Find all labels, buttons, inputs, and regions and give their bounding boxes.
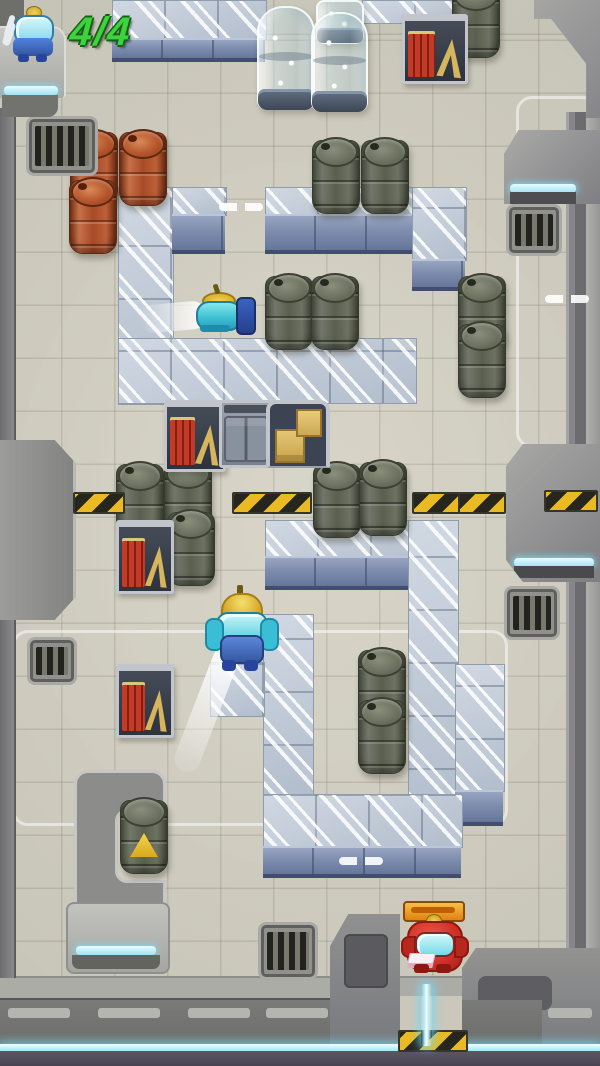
passage-marker xyxy=(545,295,589,303)
metal-column xyxy=(408,520,459,822)
metal-block xyxy=(172,187,227,216)
skid-part xyxy=(200,325,230,332)
road-dash xyxy=(8,1008,70,1018)
dark-barrel xyxy=(312,140,360,214)
legr-part xyxy=(244,660,258,671)
dark-barrel xyxy=(458,324,506,398)
vent-grate xyxy=(27,637,77,685)
gate-panel xyxy=(344,934,388,988)
metal-block-front xyxy=(172,214,225,254)
dark-barrel xyxy=(358,700,406,774)
metal-column xyxy=(455,664,505,792)
cyan-glow-strip xyxy=(4,86,58,95)
metal-column xyxy=(412,187,467,261)
footl-part xyxy=(414,964,429,973)
locker-cabinet xyxy=(219,400,273,468)
metal-wall-top-band xyxy=(112,0,267,40)
wall-base xyxy=(514,566,594,578)
exit-beam xyxy=(421,984,432,1046)
legr-part xyxy=(36,54,47,62)
footr-part xyxy=(436,964,451,973)
character-counter: 4/4 xyxy=(68,10,133,55)
glass-capsule xyxy=(311,12,368,112)
supply-shelf xyxy=(116,520,174,594)
hazard-stripe xyxy=(232,492,312,514)
dark-barrel xyxy=(265,276,313,350)
road-dash xyxy=(188,1008,250,1018)
metal-row xyxy=(118,338,417,404)
hud-character-icon xyxy=(9,6,57,60)
metal-wall-top-band-front xyxy=(112,38,265,62)
wall-protrusion-top-right xyxy=(504,130,600,204)
hazard-stripe xyxy=(544,490,598,512)
road-dash xyxy=(98,1008,160,1018)
wall-pillar-left xyxy=(0,440,76,620)
dark-barrel xyxy=(167,512,215,586)
wall-protrusion-mid-right xyxy=(506,444,600,582)
platform-base xyxy=(2,95,58,117)
game-screen: 4/4 xyxy=(0,0,600,1066)
road-dash xyxy=(266,1008,328,1018)
legl-part xyxy=(18,54,29,62)
supply-shelf xyxy=(402,14,468,84)
hazard-stripe xyxy=(73,492,125,514)
passage-marker xyxy=(219,203,263,211)
passage-marker xyxy=(339,857,383,865)
red-barrel xyxy=(69,180,117,254)
exit-hazard-stripe xyxy=(398,1030,468,1052)
crate-stack xyxy=(266,400,330,468)
supply-shelf xyxy=(164,400,226,472)
hazard-stripe xyxy=(458,492,506,514)
dark-barrel xyxy=(359,462,407,536)
vent-grate xyxy=(506,204,562,256)
road-dash xyxy=(548,1008,592,1018)
wall-pedestal xyxy=(66,902,170,974)
vent-grate xyxy=(26,116,98,176)
finr-part xyxy=(454,936,469,958)
metal-row xyxy=(263,794,463,848)
supply-shelf xyxy=(116,664,174,738)
cyan-glow-strip xyxy=(76,946,156,955)
glass-capsule xyxy=(257,6,315,110)
gate-pillar-left xyxy=(330,914,400,1048)
dark-barrel xyxy=(313,464,361,538)
cyan-glow-line xyxy=(0,1044,600,1051)
red-robot-exit[interactable] xyxy=(402,900,464,974)
blue-robot[interactable] xyxy=(210,585,270,671)
pack-part xyxy=(236,297,256,335)
metal-row-front xyxy=(265,214,415,254)
legl-part xyxy=(222,660,236,671)
vent-grate xyxy=(504,586,560,640)
wall-base xyxy=(510,192,576,204)
bottom-road xyxy=(0,998,600,1050)
red-barrel xyxy=(119,132,167,206)
wall-base xyxy=(72,955,160,969)
bottom-dark-band xyxy=(0,1051,600,1066)
dark-barrel xyxy=(311,276,359,350)
hazard-barrel xyxy=(120,800,168,874)
blue-robot-flying[interactable] xyxy=(192,288,256,340)
hazard-stripe xyxy=(412,492,460,514)
dark-barrel xyxy=(361,140,409,214)
vent-grate xyxy=(258,922,318,980)
barcore-part xyxy=(411,907,455,913)
